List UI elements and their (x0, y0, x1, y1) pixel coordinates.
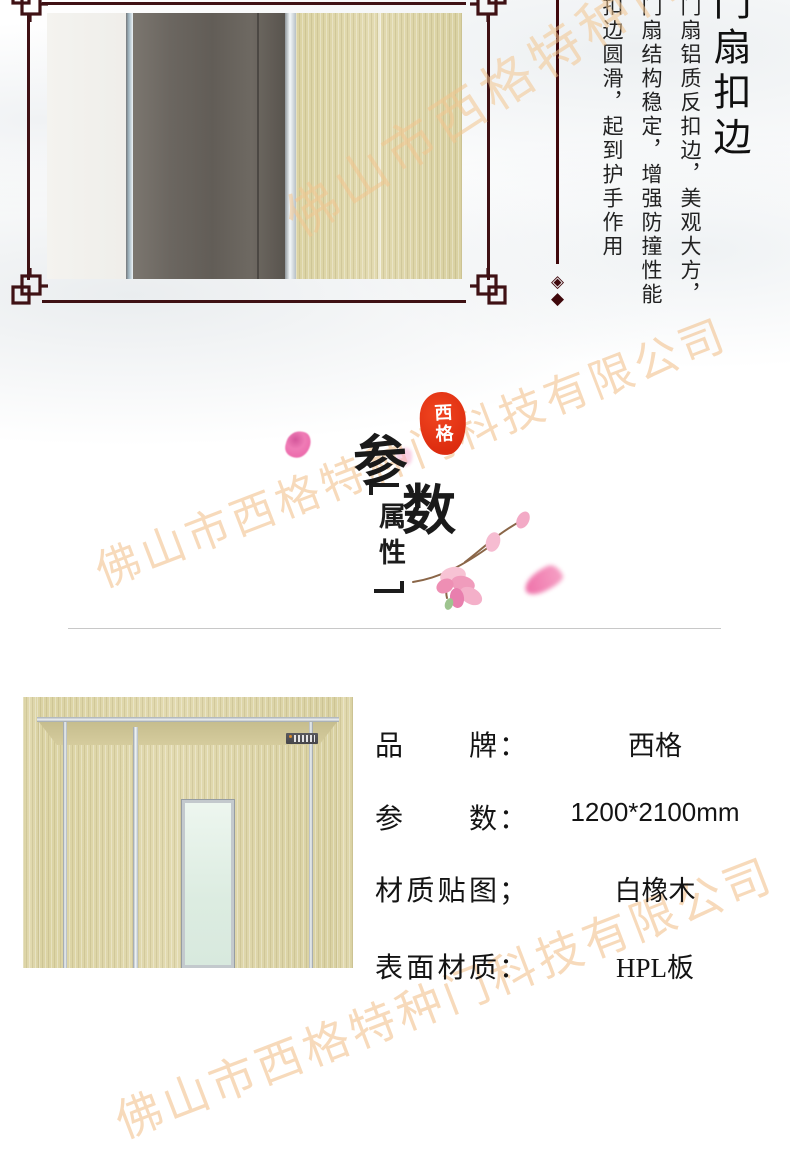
door-vision-glass (182, 800, 234, 968)
spec-row-size: 参数 ： 1200*2100mm (375, 797, 775, 837)
knot-corner-icon (10, 268, 48, 306)
diamond-solid-icon: ◆ (551, 291, 564, 308)
photo-edge-strip (126, 13, 133, 279)
section-divider (68, 628, 721, 629)
spec-label: 品牌 (375, 724, 497, 764)
vertical-accent-rule (556, 0, 559, 264)
caption-column: 门扇结构稳定，增强防撞性能 (636, 0, 666, 335)
hero-caption-vertical: 门扇铝质反扣边，美观大方， 门扇结构稳定，增强防撞性能 扣边圆滑，起到护手作用 (588, 0, 705, 335)
brand-plaque (286, 733, 318, 744)
frame-line-bottom (42, 300, 466, 303)
spec-row-brand: 品牌 ： 西格 (375, 724, 775, 764)
hero-title-vertical: 门扇扣边 (701, 0, 756, 182)
photo-gray-trim (133, 13, 285, 279)
magnolia-branch-illustration (405, 506, 535, 610)
photo-wood-veneer (296, 13, 462, 279)
bracket-top-icon (369, 483, 399, 495)
spec-colon: ： (499, 946, 527, 986)
brand-seal-text: 西格 (429, 402, 457, 445)
bracket-bottom-icon (374, 581, 404, 593)
spec-colon: ： (499, 797, 527, 837)
door-leaf-divider-strip (133, 727, 138, 968)
spec-colon: ： (499, 724, 527, 764)
photo-white-panel (47, 13, 126, 279)
spec-value: 西格 (550, 724, 760, 763)
door-wall-strip-left (23, 697, 39, 968)
spec-value: 白橡木 (550, 869, 760, 908)
spec-colon: ； (499, 869, 527, 909)
spec-value: 1200*2100mm (550, 797, 760, 828)
spec-label: 材质贴图 (375, 869, 497, 909)
frame-line-left (27, 14, 30, 280)
door-product-photo (23, 697, 353, 968)
door-lintel (37, 697, 339, 717)
door-edge-detail-photo (47, 13, 462, 279)
knot-corner-icon (470, 268, 508, 306)
knot-corner-icon (470, 0, 508, 22)
spec-label: 表面材质 (375, 946, 497, 986)
petal-decoration (283, 428, 313, 460)
frame-line-top (42, 2, 466, 5)
photo-silver-strip (285, 13, 296, 279)
brand-seal-stamp: 西格 (418, 391, 467, 456)
caption-column: 扣边圆滑，起到护手作用 (597, 0, 627, 335)
door-jamb-edge-right (309, 722, 313, 968)
door-jamb-edge-left (63, 722, 67, 968)
spec-value: HPL板 (550, 946, 760, 985)
door-wall-strip-right (337, 697, 353, 968)
product-detail-page: { "watermark": { "text": "佛山市西格特种门科技有限公司… (0, 0, 790, 968)
spec-label: 参数 (375, 797, 497, 837)
frame-line-right (487, 14, 490, 280)
spec-row-surface: 表面材质 ： HPL板 (375, 946, 775, 986)
knot-corner-icon (10, 0, 48, 22)
spec-row-texture: 材质贴图 ； 白橡木 (375, 869, 775, 909)
